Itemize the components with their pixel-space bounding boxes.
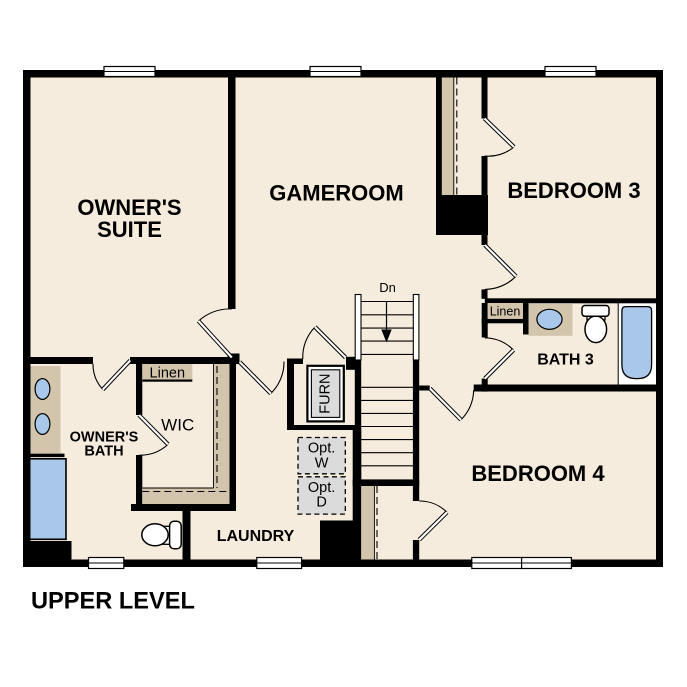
svg-text:D: D — [316, 495, 326, 511]
svg-text:UPPER LEVEL: UPPER LEVEL — [31, 589, 195, 615]
svg-text:BEDROOM 3: BEDROOM 3 — [507, 178, 640, 203]
svg-text:LAUNDRY: LAUNDRY — [217, 528, 295, 545]
svg-text:BATH: BATH — [84, 444, 123, 460]
svg-text:WIC: WIC — [161, 416, 194, 435]
svg-text:Dn: Dn — [379, 280, 396, 295]
svg-text:Opt.: Opt. — [308, 441, 335, 457]
svg-text:W: W — [315, 456, 329, 472]
svg-text:BEDROOM 4: BEDROOM 4 — [471, 461, 605, 486]
svg-text:BATH 3: BATH 3 — [537, 352, 594, 369]
svg-text:Opt.: Opt. — [308, 480, 335, 496]
svg-text:FURN: FURN — [317, 373, 333, 413]
svg-text:SUITE: SUITE — [97, 217, 162, 242]
svg-text:Linen: Linen — [150, 366, 185, 382]
svg-text:GAMEROOM: GAMEROOM — [269, 181, 403, 206]
svg-text:Linen: Linen — [490, 305, 521, 319]
